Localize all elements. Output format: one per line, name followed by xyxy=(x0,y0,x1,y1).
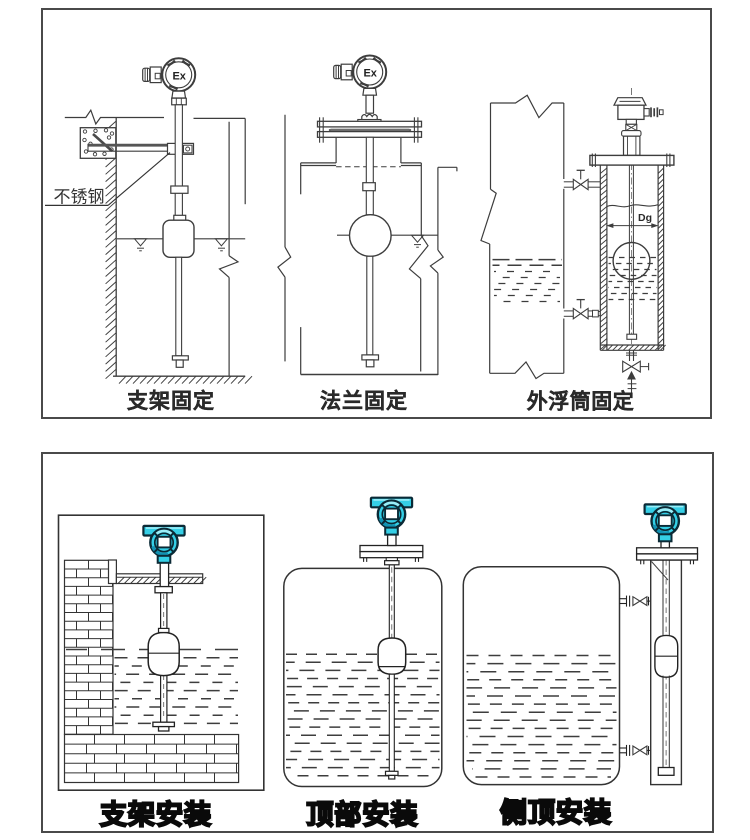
svg-text:支架固定: 支架固定 xyxy=(127,389,215,413)
svg-text:外浮筒固定: 外浮筒固定 xyxy=(527,390,635,414)
svg-text:Ex: Ex xyxy=(172,70,186,82)
svg-text:Ex: Ex xyxy=(363,68,377,80)
svg-text:Dg: Dg xyxy=(638,212,652,224)
svg-text:法兰固定: 法兰固定 xyxy=(320,389,408,413)
svg-text:支架安装: 支架安装 xyxy=(100,800,212,830)
svg-text:侧顶安装: 侧顶安装 xyxy=(500,798,612,828)
svg-text:顶部安装: 顶部安装 xyxy=(306,799,418,830)
svg-text:不锈钢: 不锈钢 xyxy=(54,188,105,207)
